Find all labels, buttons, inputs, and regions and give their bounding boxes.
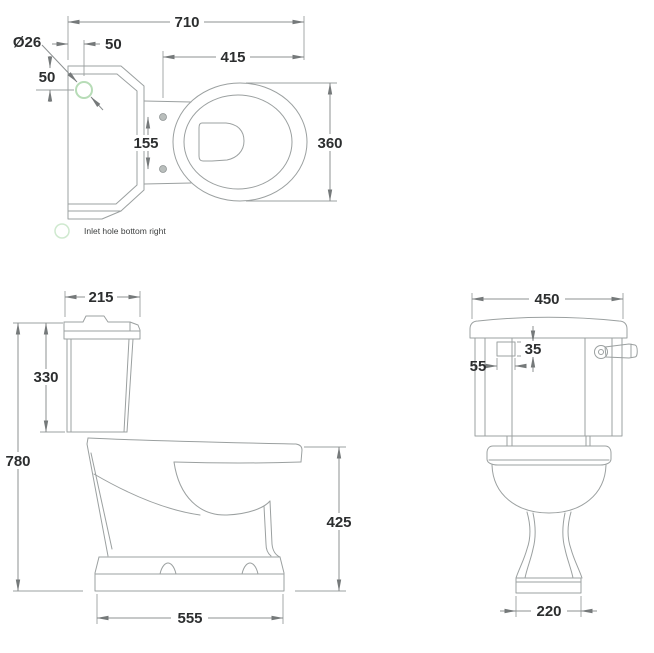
pan-rear-edge — [87, 438, 108, 556]
seat-hinge-plate-bottom-edge — [144, 183, 191, 184]
side-view: 215 330 780 425 555 — [1, 289, 358, 627]
dim-label-155: 155 — [133, 135, 158, 152]
dimension-hinge-centres: 155 — [128, 117, 164, 169]
seat-outer-ring — [173, 83, 307, 201]
toilet-dimension-drawing: 710 415 360 155 50 — [0, 0, 654, 653]
seat-inner-ring — [184, 95, 292, 189]
dim-label-diameter-26: Ø26 — [13, 34, 41, 51]
cistern-plan-inner — [68, 74, 137, 204]
cistern-lid-front — [470, 317, 627, 338]
dim-label-220: 220 — [536, 603, 561, 620]
pedestal-left-inner — [525, 513, 535, 578]
hinge-hole-bottom — [160, 166, 167, 173]
pan-front-leg-inner — [264, 506, 271, 556]
dimension-inlet-offset-horizontal: 50 — [52, 36, 122, 76]
plan-view: 710 415 360 155 50 — [13, 14, 349, 238]
bowl-rim-band — [487, 446, 611, 465]
dimension-base-width: 220 — [500, 596, 597, 620]
dim-label-50-horizontal: 50 — [105, 36, 122, 53]
dim-label-710: 710 — [174, 14, 199, 31]
front-view: 450 35 55 220 — [470, 291, 638, 620]
front-cistern — [470, 317, 637, 436]
front-pan — [487, 436, 611, 593]
technical-drawing-page: 710 415 360 155 50 — [0, 0, 654, 653]
pan-seat-top — [88, 438, 302, 462]
dimension-overall-length: 710 — [68, 14, 304, 60]
seat-hinge-plate-top-edge — [144, 101, 191, 102]
dimension-cutout-width: 55 — [470, 358, 523, 375]
dimension-overall-depth: 555 — [97, 594, 283, 627]
legend-label: Inlet hole bottom right — [84, 226, 166, 236]
leader-line — [91, 97, 103, 110]
bowl-water-outline — [199, 123, 244, 161]
dimension-cistern-width: 450 — [472, 291, 623, 319]
lever-arm — [605, 344, 637, 358]
pedestal-base — [516, 578, 581, 593]
cistern-lid-side — [64, 316, 140, 339]
dim-label-215: 215 — [88, 289, 113, 306]
hinge-hole-top — [160, 114, 167, 121]
plan-seat — [144, 83, 307, 201]
pedestal-right-inner — [563, 513, 573, 578]
dim-label-415: 415 — [220, 49, 245, 66]
dim-label-425: 425 — [326, 514, 351, 531]
inlet-hole-marker — [76, 82, 92, 98]
dim-label-780: 780 — [5, 453, 30, 470]
pan-bowl-curve — [174, 462, 270, 515]
dim-label-35: 35 — [525, 341, 542, 358]
legend: Inlet hole bottom right — [55, 224, 166, 238]
side-cistern — [64, 316, 140, 432]
dimension-cistern-height: 330 — [13, 323, 65, 432]
dim-label-330: 330 — [33, 369, 58, 386]
side-pan — [87, 438, 302, 591]
base-fixing-lug-front — [242, 563, 258, 574]
pan-front-leg-outer — [270, 501, 280, 557]
pan-rim-underside — [174, 462, 301, 463]
bowl-front-curve — [492, 465, 606, 513]
pan-underbowl-slope — [94, 474, 200, 515]
dim-label-50-vertical: 50 — [39, 69, 56, 86]
flush-lever — [595, 344, 638, 359]
dimension-cutout-height: 35 — [517, 326, 545, 372]
pan-rear-edge-inner — [91, 453, 112, 549]
dimension-cistern-depth: 215 — [65, 289, 140, 317]
dimension-rim-height: 425 — [295, 447, 358, 591]
dim-label-555: 555 — [177, 610, 202, 627]
inlet-hole-legend-icon — [55, 224, 69, 238]
dim-label-450: 450 — [534, 291, 559, 308]
lever-boss-center — [599, 350, 604, 355]
dim-label-55: 55 — [470, 358, 487, 375]
cistern-plan-body-edge — [68, 211, 121, 219]
dim-label-360: 360 — [317, 135, 342, 152]
dimension-seat-length: 415 — [163, 49, 304, 98]
dimension-bowl-width: 360 — [246, 83, 349, 201]
base-fixing-lug-rear — [160, 563, 176, 574]
